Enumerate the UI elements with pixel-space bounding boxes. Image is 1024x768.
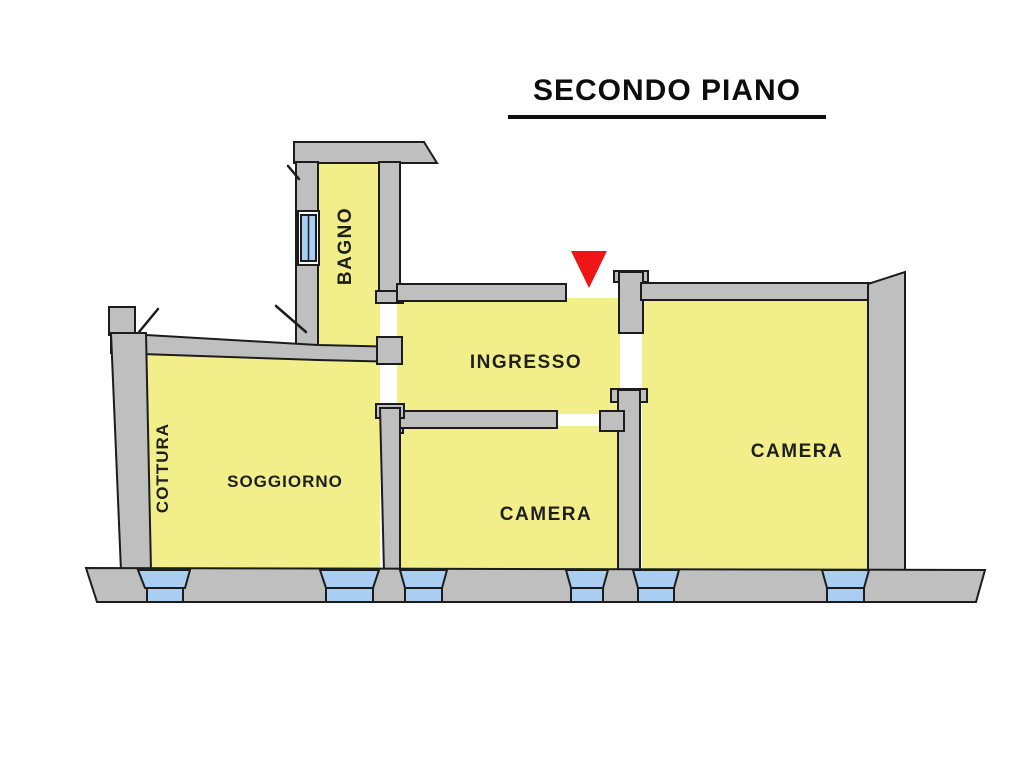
room-label-camera-right: CAMERA: [751, 441, 843, 462]
wall: [641, 283, 872, 300]
window-pane: [571, 588, 603, 602]
window-pane: [566, 570, 608, 588]
floor-plan-drawing: BAGNO INGRESSO COTTURA SOGGIORNO CAMERA …: [0, 0, 1024, 768]
window-pane: [405, 588, 442, 602]
window-pane: [138, 570, 190, 588]
window-pane: [147, 588, 183, 602]
room-label-ingresso: INGRESSO: [470, 352, 582, 373]
room-label-cottura: COTTURA: [153, 423, 172, 513]
room-soggiorno-floor: [146, 354, 380, 572]
window-icon: [566, 570, 608, 602]
window-icon: [298, 211, 319, 265]
window-pane: [633, 570, 679, 588]
window-pane: [638, 588, 674, 602]
window-pane: [326, 588, 373, 602]
wall: [397, 284, 566, 301]
door-swing-line: [139, 309, 158, 332]
window-pane: [320, 570, 379, 588]
room-camera-right-floor: [642, 299, 870, 572]
wall: [868, 272, 905, 601]
window-pane: [827, 588, 864, 602]
wall: [377, 337, 402, 364]
room-label-camera-center: CAMERA: [500, 504, 592, 525]
wall: [109, 307, 135, 335]
floor-plan-page: SECONDO PIANO: [0, 0, 1024, 768]
wall: [294, 142, 437, 163]
entrance-marker-triangle-down-icon: [571, 251, 607, 288]
window-icon: [400, 570, 447, 602]
wall: [379, 162, 400, 303]
window-pane: [400, 570, 447, 588]
window-pane: [822, 570, 869, 588]
window-icon: [822, 570, 869, 602]
window-icon: [633, 570, 679, 602]
wall: [619, 272, 643, 333]
room-label-soggiorno: SOGGIORNO: [227, 472, 343, 491]
wall: [600, 411, 624, 431]
wall: [396, 411, 557, 428]
room-camera-center-floor: [400, 426, 618, 572]
wall: [111, 333, 151, 571]
wall: [380, 408, 400, 572]
window-icon: [320, 570, 379, 602]
room-label-bagno: BAGNO: [335, 207, 356, 285]
